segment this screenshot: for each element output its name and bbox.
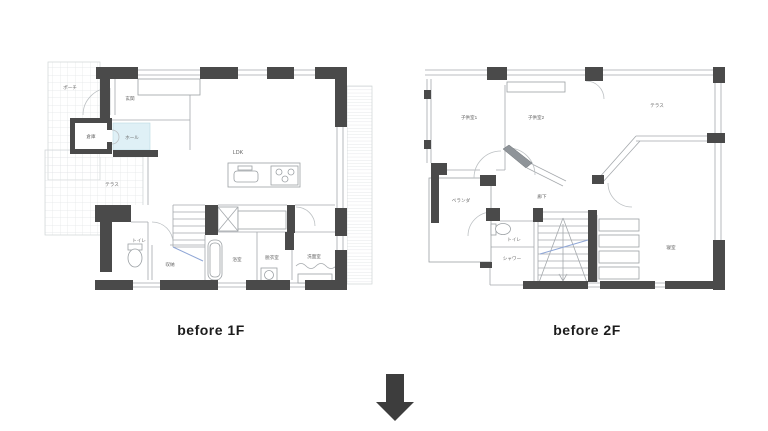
room-label-toilet-1f: トイレ	[132, 238, 146, 243]
room-label-bedroom: 寝室	[666, 244, 676, 250]
bedroom-shelf	[599, 251, 639, 263]
room-label-porch: ポーチ	[63, 84, 77, 90]
bedroom-shelf	[599, 219, 639, 231]
plan-1f: ポーチ 玄関 倉庫 ホール テラス LDK トイレ 収納 浴室 脱衣室 洗面室	[45, 62, 372, 290]
room-label-hall: ホール	[125, 135, 139, 140]
bathtub-inner	[210, 243, 220, 277]
burner-icon	[288, 169, 294, 175]
side-deck-area	[347, 86, 372, 284]
plan-2f: 子供室1 子供室2 テラス ベランダ 廊下 トイレ シャワー 寝室	[424, 64, 725, 292]
washing-machine-drum	[265, 271, 274, 280]
room-label-closet: 収納	[165, 261, 175, 268]
room-label-storage-shed: 倉庫	[86, 133, 96, 140]
room-label-shower: シャワー	[503, 256, 522, 261]
floorplan-figure: ポーチ 玄関 倉庫 ホール テラス LDK トイレ 収納 浴室 脱衣室 洗面室	[0, 0, 768, 431]
down-arrow-icon	[376, 374, 414, 421]
sink	[234, 171, 258, 182]
room-label-entrance: 玄関	[125, 95, 135, 102]
burner-icon	[276, 169, 282, 175]
room-label-washroom: 洗面室	[307, 253, 321, 260]
bedroom-shelf	[599, 235, 639, 247]
bedroom-shelf	[599, 267, 639, 279]
kitchen-back-counter	[238, 211, 286, 229]
entry-closet	[138, 79, 200, 95]
caption-before-2f: before 2F	[502, 322, 672, 338]
room-label-corridor: 廊下	[537, 193, 547, 200]
caption-before-1f: before 1F	[126, 322, 296, 338]
burner-icon	[282, 176, 288, 182]
toilet-bowl-2f	[496, 224, 511, 235]
room-label-toilet-2f: トイレ	[507, 237, 521, 242]
room-label-dressing: 脱衣室	[265, 254, 279, 261]
room-label-kids2: 子供室2	[528, 114, 545, 121]
toilet-bowl-1f	[128, 249, 142, 267]
room-label-ldk: LDK	[233, 150, 244, 156]
floorplans-drawing: ポーチ 玄関 倉庫 ホール テラス LDK トイレ 収納 浴室 脱衣室 洗面室	[0, 0, 768, 431]
faucet	[238, 166, 252, 170]
room-label-kids1: 子供室1	[461, 114, 478, 121]
room-label-bath: 浴室	[232, 256, 242, 263]
kids-room-closet	[507, 82, 565, 92]
room-label-veranda: ベランダ	[452, 197, 471, 204]
